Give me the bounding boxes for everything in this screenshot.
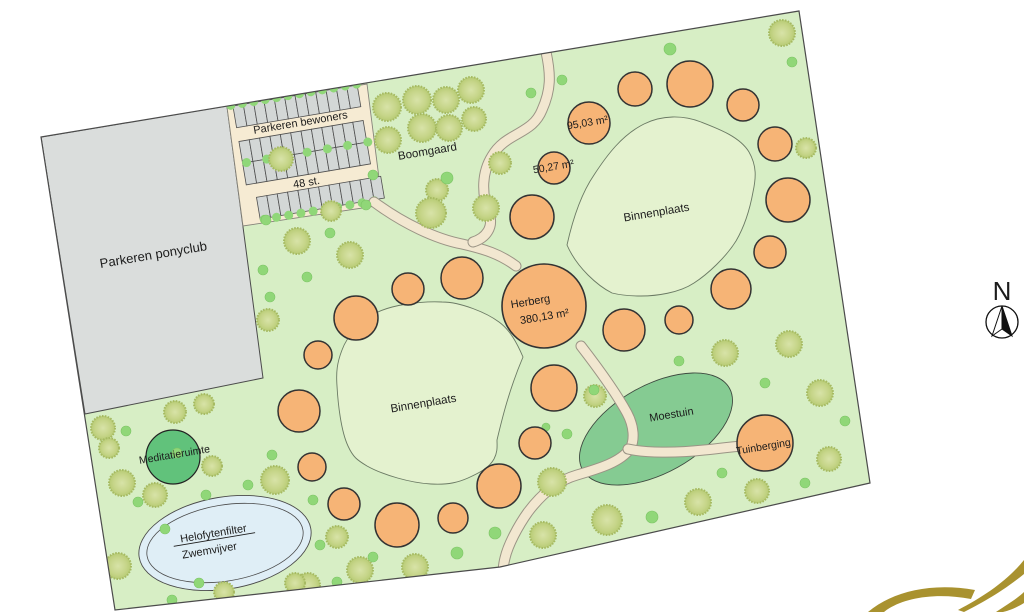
pitch-circle-lower <box>375 503 419 547</box>
shrub-icon <box>664 43 676 55</box>
shrub-icon <box>787 57 797 67</box>
tree-icon <box>769 20 795 46</box>
logo-swoosh <box>996 592 1024 612</box>
shrub-icon <box>194 578 204 588</box>
shrub-icon <box>526 88 536 98</box>
tree-icon <box>807 380 833 406</box>
tree-icon <box>685 489 711 515</box>
tree-icon <box>194 394 214 414</box>
tree-icon <box>538 468 566 496</box>
pitch-circle-upper <box>603 309 645 351</box>
shrub-icon <box>589 385 599 395</box>
shrub-icon <box>717 468 727 478</box>
tree-icon <box>796 138 816 158</box>
tree-icon <box>462 107 486 131</box>
tree-icon <box>202 456 222 476</box>
shrub-icon <box>800 478 810 488</box>
tree-icon <box>776 331 802 357</box>
tree-icon <box>143 483 167 507</box>
shrub-icon <box>562 429 572 439</box>
shrub-icon <box>368 552 378 562</box>
shrub-icon <box>441 172 453 184</box>
tree-icon <box>433 87 459 113</box>
pitch-circle-upper <box>510 195 554 239</box>
shrub-icon <box>646 511 658 523</box>
tree-icon <box>436 115 462 141</box>
shrub-icon <box>760 378 770 388</box>
shrub-icon <box>325 228 335 238</box>
shrub-icon <box>261 215 271 225</box>
shrub-icon <box>308 495 318 505</box>
compass-rose: N <box>986 276 1018 338</box>
pitch-circle-lower <box>278 390 320 432</box>
pitch-circle-upper <box>758 127 792 161</box>
tree-icon <box>489 152 511 174</box>
shrub-icon <box>315 540 325 550</box>
shrub-icon <box>267 450 277 460</box>
tree-icon <box>269 147 293 171</box>
shrub-icon <box>840 416 850 426</box>
tree-icon <box>284 228 310 254</box>
tree-icon <box>164 401 186 423</box>
shrub-icon <box>133 497 143 507</box>
shrub-icon <box>368 170 378 180</box>
tree-icon <box>592 505 622 535</box>
pitch-circle-lower <box>304 341 332 369</box>
tree-icon <box>261 466 289 494</box>
pitch-circle-upper <box>766 178 810 222</box>
tree-icon <box>105 553 131 579</box>
shrub-icon <box>557 75 567 85</box>
shrub-icon <box>361 200 371 210</box>
tree-icon <box>257 309 279 331</box>
north-label: N <box>993 276 1012 306</box>
pitch-circle-lower <box>441 257 483 299</box>
tree-icon <box>347 557 373 583</box>
shrub-icon <box>201 490 211 500</box>
pitch-circle-lower <box>328 488 360 520</box>
tree-icon <box>712 340 738 366</box>
site-plan-drawing: Parkeren ponyclubParkeren bewoners48 st.… <box>0 0 1024 612</box>
pitch-circle-upper <box>754 236 786 268</box>
pitch-circle-lower <box>477 464 521 508</box>
shrub-icon <box>243 480 253 490</box>
tree-icon <box>373 93 401 121</box>
tree-icon <box>473 195 499 221</box>
tree-icon <box>408 114 436 142</box>
tree-icon <box>321 201 341 221</box>
pitch-circle-lower <box>438 503 468 533</box>
tree-icon <box>326 526 348 548</box>
pitch-circle-upper <box>667 61 713 107</box>
pitch-circle-lower <box>392 273 424 305</box>
logo-fragment <box>868 560 1024 612</box>
shrub-icon <box>489 527 501 539</box>
shrub-icon <box>121 426 131 436</box>
tree-icon <box>375 127 401 153</box>
site-plan-canvas: Parkeren ponyclubParkeren bewoners48 st.… <box>0 0 1024 612</box>
tree-icon <box>91 416 115 440</box>
pitch-circle-lower <box>519 427 551 459</box>
logo-swoosh <box>868 587 975 612</box>
shrub-icon <box>674 356 684 366</box>
pitch-circle-upper <box>727 89 759 121</box>
shrub-icon <box>302 272 312 282</box>
tree-icon <box>109 470 135 496</box>
tree-icon <box>99 438 119 458</box>
pitch-circle-lower <box>531 365 577 411</box>
shrub-icon <box>451 547 463 559</box>
tree-icon <box>530 522 556 548</box>
pitch-circle-upper <box>665 306 693 334</box>
tree-icon <box>458 77 484 103</box>
tree-icon <box>745 479 769 503</box>
pitch-circle-upper <box>711 269 751 309</box>
tree-icon <box>817 447 841 471</box>
shrub-icon <box>160 524 170 534</box>
pitch-circle-lower <box>298 453 326 481</box>
shrub-icon <box>265 292 275 302</box>
tree-icon <box>403 86 431 114</box>
shrub-icon <box>258 265 268 275</box>
tree-icon <box>337 242 363 268</box>
pitch-circle-upper <box>618 72 652 106</box>
pitch-circle-lower <box>334 296 378 340</box>
tree-icon <box>416 198 446 228</box>
